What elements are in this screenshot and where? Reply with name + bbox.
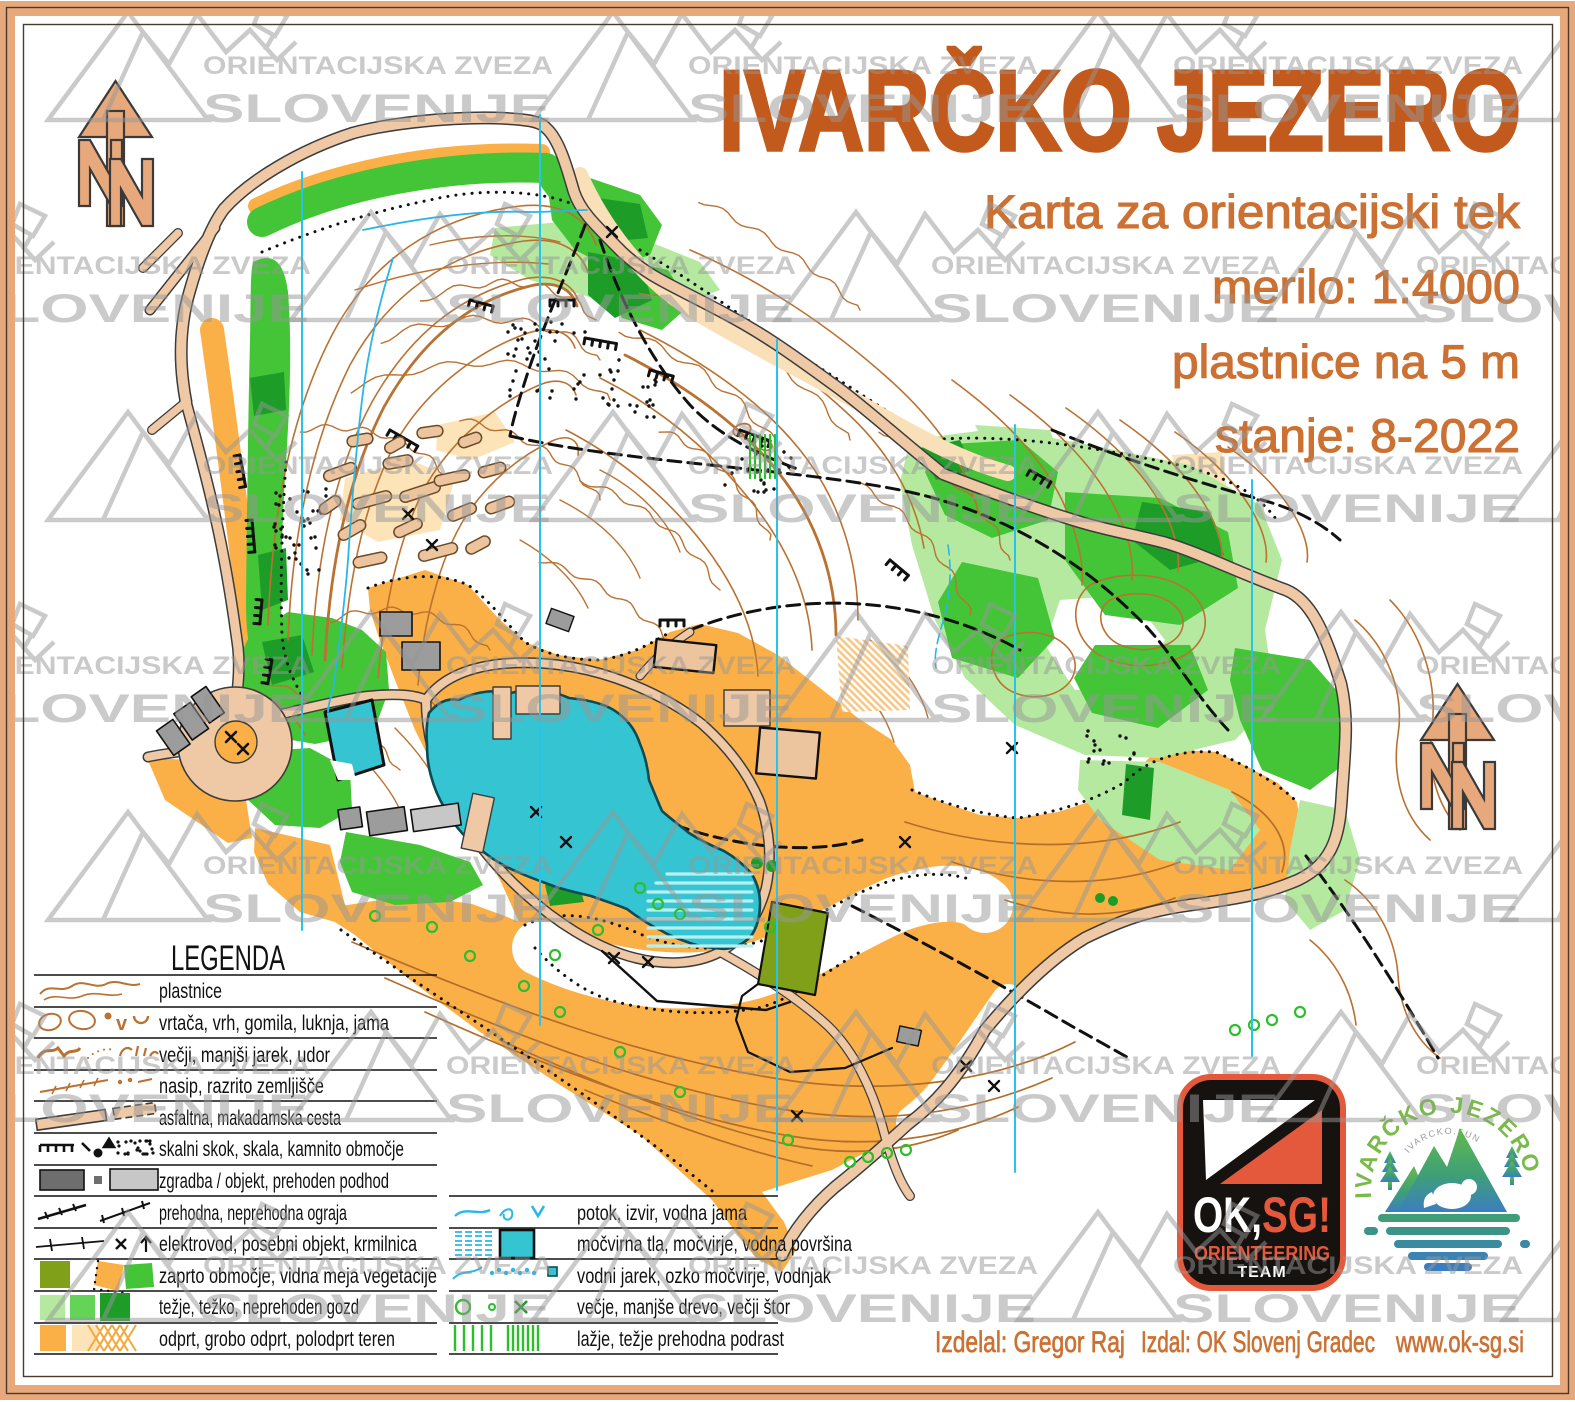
svg-text:plastnice na 5 m: plastnice na 5 m (1172, 335, 1520, 388)
svg-text:potok, izvir, vodna jama: potok, izvir, vodna jama (577, 1201, 747, 1225)
svg-text:LEGENDA: LEGENDA (171, 939, 285, 978)
svg-text:zgradba / objekt, prehoden pod: zgradba / objekt, prehoden podhod (159, 1169, 389, 1193)
svg-text:Karta za orientacijski tek: Karta za orientacijski tek (984, 185, 1521, 238)
svg-text:plastnice: plastnice (159, 979, 222, 1003)
svg-text:skalni skok, skala, kamnito ob: skalni skok, skala, kamnito območje (159, 1137, 404, 1161)
svg-text:v: v (116, 1013, 128, 1035)
